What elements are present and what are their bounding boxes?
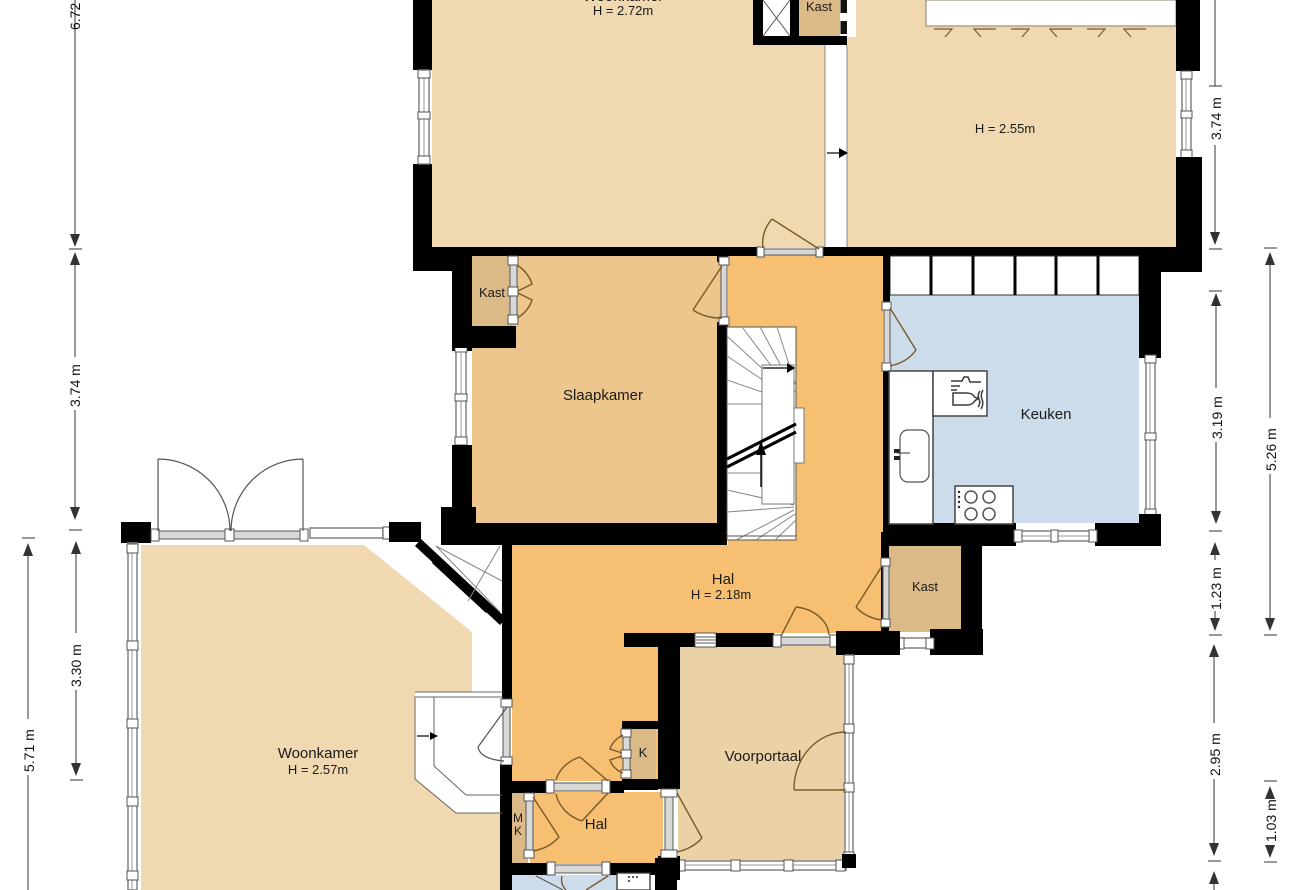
svg-text:Kast: Kast (912, 579, 938, 594)
svg-text:Kast: Kast (806, 0, 832, 14)
svg-text:3.74 m: 3.74 m (67, 364, 83, 407)
svg-text:Kast: Kast (479, 285, 505, 300)
svg-text:3.74 m: 3.74 m (1208, 97, 1224, 140)
svg-text:H = 2.55m: H = 2.55m (975, 121, 1035, 136)
svg-text:Slaapkamer: Slaapkamer (563, 387, 643, 404)
svg-text:Woonkamer: Woonkamer (278, 745, 359, 762)
svg-text:2.95 m: 2.95 m (1207, 733, 1223, 776)
svg-text:Keuken: Keuken (1021, 406, 1072, 423)
svg-text:5.71 m: 5.71 m (21, 729, 37, 772)
svg-text:Hal: Hal (712, 571, 735, 588)
svg-text:5.26 m: 5.26 m (1263, 428, 1279, 471)
svg-text:Voorportaal: Voorportaal (725, 748, 802, 765)
svg-text:3.30 m: 3.30 m (68, 644, 84, 687)
svg-text:H = 2.72m: H = 2.72m (593, 3, 653, 18)
svg-text:K: K (514, 824, 522, 838)
svg-text:K: K (639, 745, 648, 760)
svg-text:Hal: Hal (585, 816, 608, 833)
svg-text:1.03 m: 1.03 m (1263, 799, 1279, 842)
svg-text:H = 2.18m: H = 2.18m (691, 587, 751, 602)
svg-text:3.19 m: 3.19 m (1209, 396, 1225, 439)
svg-text:1.23 m: 1.23 m (1208, 567, 1224, 610)
svg-text:M: M (513, 811, 523, 825)
svg-text:6.72 m: 6.72 m (67, 0, 83, 30)
svg-text:H = 2.57m: H = 2.57m (288, 762, 348, 777)
